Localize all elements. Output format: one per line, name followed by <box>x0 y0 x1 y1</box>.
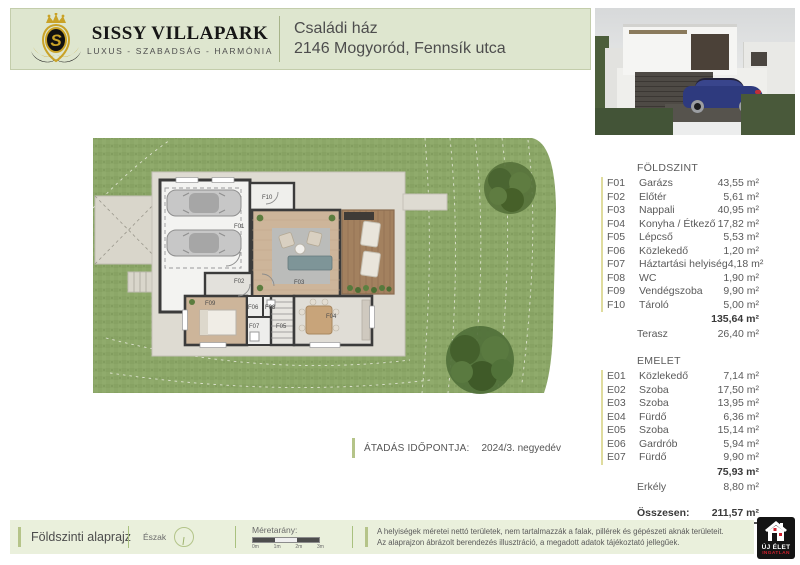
disclaimer-line-1: A helyiségek méretei nettó területek, ne… <box>377 526 724 537</box>
svg-text:F06: F06 <box>248 305 259 311</box>
render-neighbor-window <box>751 52 767 66</box>
accent-bar <box>18 527 21 547</box>
upper-floor-heading: EMELET <box>637 355 759 367</box>
footer-bar: Földszinti alaprajz Észak Méretarány: 0m… <box>10 520 754 554</box>
schedule-row: E07Fürdő9,90 m² <box>607 451 759 465</box>
tree-bottom-right <box>446 326 514 394</box>
schedule-row: F05Lépcső5,53 m² <box>607 231 759 245</box>
schedule-row: F10Tároló5,00 m² <box>607 299 759 313</box>
listing-type: Családi ház <box>294 19 506 39</box>
render-hedge-front <box>595 108 673 135</box>
schedule-row: F06Közlekedő1,20 m² <box>607 245 759 259</box>
svg-text:F04: F04 <box>326 314 337 320</box>
svg-text:F08: F08 <box>265 305 276 311</box>
coffee-table <box>295 244 305 254</box>
agency-name-line2: INGATLAN <box>762 551 790 557</box>
schedule-row: F08WC1,90 m² <box>607 272 759 286</box>
lounger <box>360 251 380 277</box>
compass-needle <box>183 537 185 545</box>
lounger <box>360 221 380 247</box>
footer-disclaimer-section: A helyiségek méretei nettó területek, ne… <box>353 526 754 549</box>
grand-total-label: Összesen: <box>637 506 712 520</box>
disclaimer-text: A helyiségek méretei nettó területek, ne… <box>377 526 724 549</box>
brand-block: S SISSY VILLAPARK LUXUS - SZABADSÁG - HA… <box>11 9 279 69</box>
schedule-row: E02Szoba17,50 m² <box>607 384 759 398</box>
plant <box>257 285 263 291</box>
schedule-row: F09Vendégszoba9,90 m² <box>607 285 759 299</box>
north-label: Észak <box>143 532 166 542</box>
scale-label: Méretarány: <box>252 525 352 535</box>
armchair <box>306 231 322 247</box>
schedule-row: E05Szoba15,14 m² <box>607 424 759 438</box>
scale-ticks: 0m 1m 2m 3m <box>252 544 324 550</box>
bed-pillow <box>200 310 208 335</box>
dining-table <box>306 306 332 334</box>
accent-bar <box>352 438 355 458</box>
brand-name: SISSY VILLAPARK <box>87 23 273 45</box>
handover-info: ÁTADÁS IDŐPONTJA: 2024/3. negyedév <box>352 438 561 458</box>
washer <box>250 332 259 341</box>
plant <box>257 215 264 222</box>
render-hedge-right <box>741 94 795 135</box>
render-car-wheel <box>691 100 704 113</box>
grand-total-value: 211,57 m² <box>712 506 759 520</box>
schedule-row: E06Gardrób5,94 m² <box>607 438 759 452</box>
schedule-row: F03Nappali40,95 m² <box>607 204 759 218</box>
apron-path-right <box>403 194 447 210</box>
svg-text:F10: F10 <box>262 195 273 201</box>
house-render-image <box>595 8 795 135</box>
plant <box>189 299 195 305</box>
listing-address: 2146 Mogyoród, Fennsík utca <box>294 39 506 59</box>
sofa <box>288 256 332 270</box>
render-roof-deck <box>629 30 687 34</box>
brand-text: SISSY VILLAPARK LUXUS - SZABADSÁG - HARM… <box>87 23 279 56</box>
footer-north-section: Észak <box>129 527 235 547</box>
plant <box>329 215 336 222</box>
terrace-screen <box>344 212 374 220</box>
sissy-villapark-logo-icon: S <box>25 13 87 65</box>
ground-floor-total: 135,64 m² <box>601 312 759 327</box>
balcony-row: Erkély8,80 m² <box>601 480 759 494</box>
handover-label: ÁTADÁS IDŐPONTJA: <box>364 443 469 454</box>
tree-top-right <box>484 162 536 214</box>
header: S SISSY VILLAPARK LUXUS - SZABADSÁG - HA… <box>10 8 591 70</box>
car-1 <box>167 190 241 216</box>
footer-plan-section: Földszinti alaprajz <box>10 527 128 547</box>
brand-tagline: LUXUS - SZABADSÁG - HARMÓNIA <box>87 46 273 56</box>
svg-text:S: S <box>50 31 62 50</box>
compass-icon <box>174 527 194 547</box>
svg-text:F02: F02 <box>234 279 245 285</box>
plan-name-label: Földszinti alaprajz <box>31 530 131 544</box>
agency-logo: ÚJ ÉLET INGATLAN <box>757 517 795 559</box>
handover-value: 2024/3. negyedév <box>481 443 561 454</box>
svg-text:F03: F03 <box>294 280 305 286</box>
scale-bar-icon <box>252 537 320 543</box>
schedule-row: E01Közlekedő7,14 m² <box>607 370 759 384</box>
render-upper-window <box>691 34 729 70</box>
schedule-row: E03Szoba13,95 m² <box>607 397 759 411</box>
listing-title: Családi ház 2146 Mogyoród, Fennsík utca <box>280 19 506 59</box>
footer-scale-section: Méretarány: 0m 1m 2m 3m <box>236 525 352 550</box>
schedule-row: F01Garázs43,55 m² <box>607 177 759 191</box>
disclaimer-line-2: Az alaprajzon ábrázolt berendezés illusz… <box>377 537 724 548</box>
schedule-row: F02Előtér5,61 m² <box>607 191 759 205</box>
schedule-row: F04Konyha / Étkező17,82 m² <box>607 218 759 232</box>
car-2 <box>167 230 241 256</box>
kitchen-counter <box>362 300 370 340</box>
svg-text:F07: F07 <box>249 324 260 330</box>
schedule-row: E04Fürdő6,36 m² <box>607 411 759 425</box>
upper-floor-total: 75,93 m² <box>601 465 759 480</box>
accent-bar <box>365 527 368 547</box>
ground-floor-rows: F01Garázs43,55 m² F02Előtér5,61 m² F03Na… <box>601 177 759 312</box>
svg-text:F05: F05 <box>276 324 287 330</box>
terrace-row: Terasz26,40 m² <box>601 327 759 341</box>
schedule-row: F07Háztartási helyiség4,18 m² <box>607 258 759 272</box>
agency-house-icon <box>764 520 788 542</box>
brochure-page: S SISSY VILLAPARK LUXUS - SZABADSÁG - HA… <box>0 0 800 565</box>
svg-text:F01: F01 <box>234 224 245 230</box>
svg-text:F09: F09 <box>205 301 216 307</box>
ground-floor-heading: FÖLDSZINT <box>637 162 759 174</box>
upper-floor-rows: E01Közlekedő7,14 m² E02Szoba17,50 m² E03… <box>601 370 759 465</box>
agency-name-line1: ÚJ ÉLET <box>762 544 791 551</box>
room-schedule: FÖLDSZINT F01Garázs43,55 m² F02Előtér5,6… <box>601 162 759 524</box>
